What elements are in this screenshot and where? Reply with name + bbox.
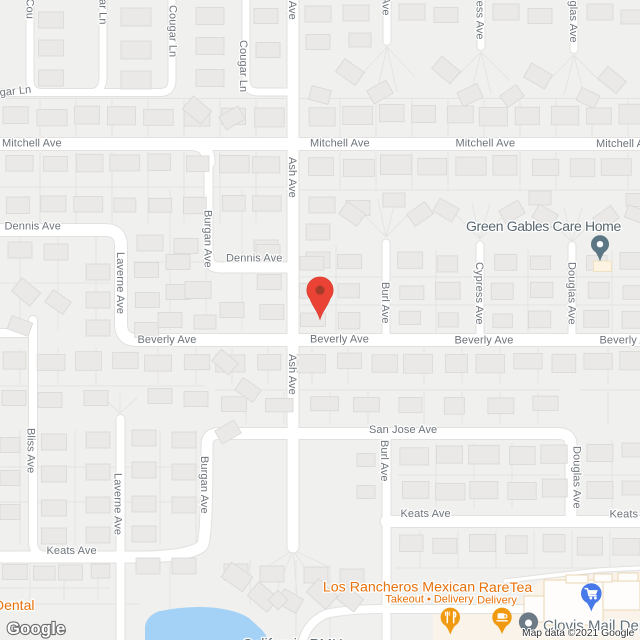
svg-text:Douglas Ave: Douglas Ave: [566, 262, 578, 325]
svg-text:Green Gables Care Home: Green Gables Care Home: [466, 218, 621, 234]
svg-text:Burl Ave: Burl Ave: [378, 440, 390, 482]
svg-text:Ash Ave: Ash Ave: [286, 157, 298, 198]
svg-text:Ash Ave: Ash Ave: [286, 0, 298, 20]
svg-text:Cypress Ave: Cypress Ave: [474, 0, 486, 40]
svg-text:Beverly Ave: Beverly Ave: [600, 335, 640, 347]
svg-text:Takeout • Delivery: Takeout • Delivery: [385, 594, 474, 606]
svg-text:Burgan Ave: Burgan Ave: [202, 210, 214, 268]
svg-text:Laverne Ave: Laverne Ave: [112, 473, 124, 535]
svg-text:Laverne Ave: Laverne Ave: [114, 252, 126, 314]
svg-text:Dental: Dental: [0, 597, 34, 613]
svg-text:Cypress Ave: Cypress Ave: [473, 262, 485, 325]
svg-text:ar Ln: ar Ln: [97, 0, 109, 25]
svg-text:California PMH: California PMH: [242, 636, 343, 640]
svg-text:Douglas Ave: Douglas Ave: [571, 446, 583, 509]
svg-text:Beverly Ave: Beverly Ave: [310, 334, 369, 346]
svg-text:Beverly Ave: Beverly Ave: [138, 334, 197, 346]
svg-text:Beverly Ave: Beverly Ave: [455, 335, 514, 347]
svg-text:Keats Ave: Keats Ave: [610, 509, 640, 521]
svg-text:Dennis Ave: Dennis Ave: [5, 221, 61, 233]
svg-text:San Jose Ave: San Jose Ave: [369, 424, 437, 436]
svg-text:Bliss Ave: Bliss Ave: [25, 428, 37, 473]
svg-text:Map data ©2021 Google: Map data ©2021 Google: [522, 628, 635, 639]
svg-text:Google: Google: [7, 620, 66, 638]
svg-text:Burl Ave: Burl Ave: [380, 0, 392, 16]
svg-text:Mitchell Ave: Mitchell Ave: [2, 138, 62, 150]
svg-text:Mitchell Ave: Mitchell Ave: [456, 138, 516, 150]
svg-text:Dennis Ave: Dennis Ave: [226, 253, 282, 265]
svg-text:Keats Ave: Keats Ave: [47, 545, 97, 557]
svg-text:Keats Ave: Keats Ave: [401, 508, 451, 520]
svg-text:Cougar Ln: Cougar Ln: [237, 40, 249, 92]
svg-text:Burl Ave: Burl Ave: [379, 282, 391, 324]
svg-text:Mitchell Ave: Mitchell Ave: [310, 138, 370, 150]
svg-text:Cougar Ln: Cougar Ln: [167, 5, 179, 57]
svg-text:Mitchell Ave: Mitchell Ave: [596, 138, 640, 150]
svg-text:Ash Ave: Ash Ave: [286, 354, 298, 395]
svg-text:Douglas Ave: Douglas Ave: [567, 0, 579, 43]
svg-text:Cou: Cou: [24, 0, 36, 19]
svg-text:Delivery: Delivery: [477, 595, 517, 607]
svg-text:Burgan Ave: Burgan Ave: [198, 456, 210, 514]
